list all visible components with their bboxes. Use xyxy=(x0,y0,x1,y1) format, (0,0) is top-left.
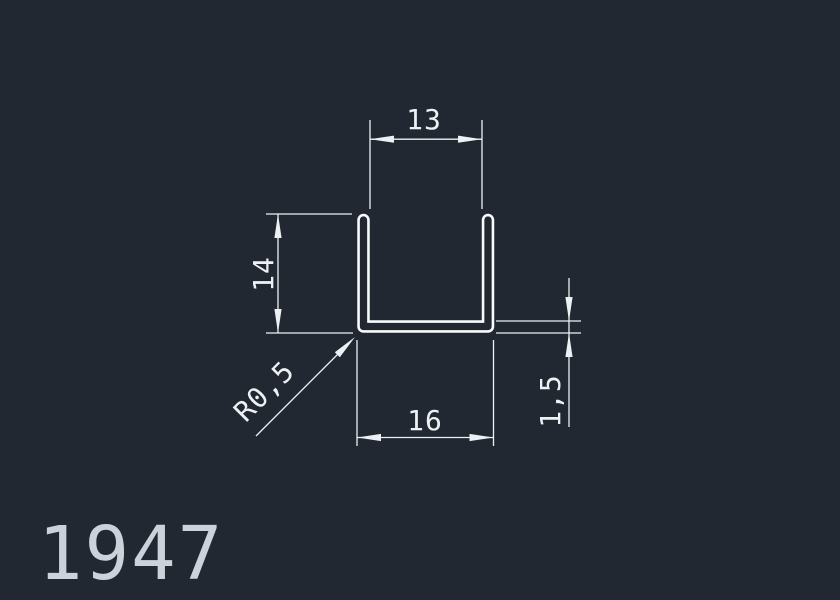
u-profile-inner-contour xyxy=(364,220,489,327)
part-number-label: 1947 xyxy=(38,511,224,597)
arrowhead-left xyxy=(357,434,381,441)
dimension-value-bottom-width: 16 xyxy=(407,404,443,437)
dimension-value-wall-thickness: 1,5 xyxy=(534,374,567,428)
dimension-wall-thickness: 1,5 xyxy=(496,278,581,428)
u-profile-outer-contour xyxy=(364,220,489,327)
arrowhead-right xyxy=(458,136,482,143)
arrowhead-top xyxy=(274,214,281,238)
cad-drawing: 13 14 16 1,5 xyxy=(0,0,840,600)
u-profile-shape xyxy=(364,220,489,327)
dimension-value-top-width: 13 xyxy=(406,103,442,136)
arrowhead-leader xyxy=(335,337,355,357)
dimension-value-corner-radius: R0,5 xyxy=(227,354,301,428)
arrowhead-bottom xyxy=(274,309,281,333)
cad-drawing-canvas: 13 14 16 1,5 xyxy=(0,0,840,600)
arrowhead-right xyxy=(470,434,494,441)
arrowhead-up xyxy=(565,333,572,357)
dimension-value-left-height: 14 xyxy=(247,256,280,292)
dimension-top-width: 13 xyxy=(370,103,482,209)
dimension-bottom-width: 16 xyxy=(357,340,494,446)
arrowhead-down xyxy=(565,297,572,321)
arrowhead-left xyxy=(370,136,394,143)
leader-corner-radius: R0,5 xyxy=(227,337,355,436)
dimension-left-height: 14 xyxy=(247,214,353,333)
